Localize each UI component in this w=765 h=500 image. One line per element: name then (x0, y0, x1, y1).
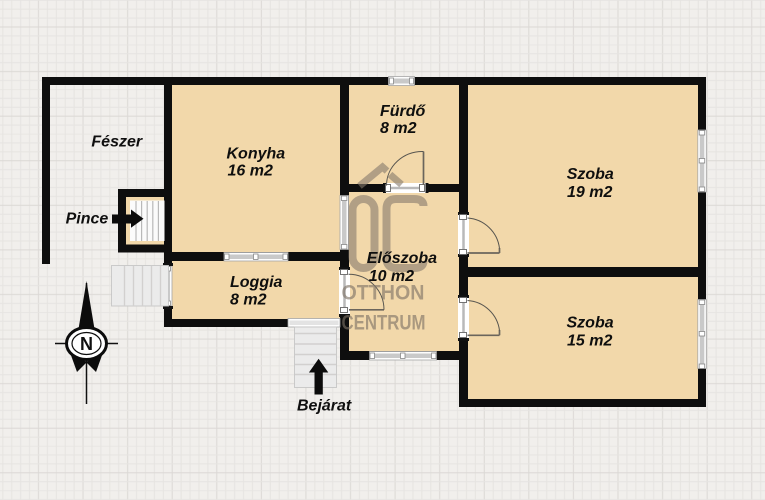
svg-text:Előszoba: Előszoba (367, 250, 437, 267)
svg-text:Fészer: Fészer (91, 133, 142, 150)
svg-text:N: N (80, 334, 93, 354)
svg-text:19 m2: 19 m2 (567, 184, 612, 201)
svg-text:8 m2: 8 m2 (380, 120, 417, 137)
svg-text:Bejárat: Bejárat (297, 398, 352, 415)
svg-text:8 m2: 8 m2 (230, 291, 267, 308)
svg-text:CENTRUM: CENTRUM (342, 311, 426, 335)
svg-text:Konyha: Konyha (227, 146, 286, 163)
svg-text:Fürdő: Fürdő (380, 103, 427, 120)
svg-text:15 m2: 15 m2 (567, 332, 612, 349)
svg-text:Loggia: Loggia (230, 274, 283, 291)
svg-text:10 m2: 10 m2 (369, 268, 414, 285)
svg-text:Szoba: Szoba (567, 166, 614, 183)
svg-text:Szoba: Szoba (567, 315, 614, 332)
svg-text:Pince: Pince (66, 211, 109, 228)
svg-text:16 m2: 16 m2 (228, 163, 273, 180)
